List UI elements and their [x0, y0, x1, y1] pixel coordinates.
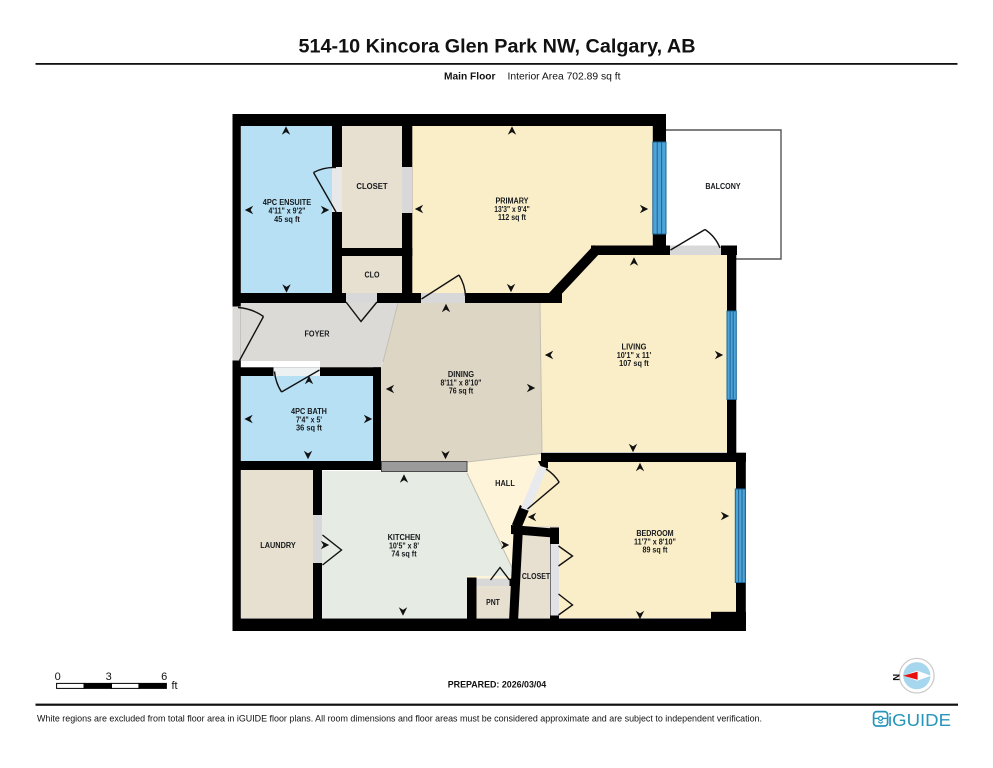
svg-text:N: N	[891, 674, 902, 681]
svg-text:CLOSET: CLOSET	[522, 571, 551, 581]
svg-text:0: 0	[55, 671, 61, 683]
svg-text:6: 6	[161, 671, 167, 683]
svg-text:ft: ft	[172, 680, 178, 692]
svg-text:LAUNDRY: LAUNDRY	[260, 540, 296, 550]
svg-text:PREPARED: 2026/03/04: PREPARED: 2026/03/04	[448, 679, 547, 690]
svg-text:Main Floor: Main Floor	[444, 71, 496, 82]
svg-text:BALCONY: BALCONY	[705, 181, 740, 191]
svg-text:CLOSET: CLOSET	[356, 181, 388, 191]
svg-text:76 sq ft: 76 sq ft	[449, 386, 473, 396]
svg-text:36 sq ft: 36 sq ft	[296, 423, 322, 433]
svg-text:514-10 Kincora Glen Park NW, C: 514-10 Kincora Glen Park NW, Calgary, AB	[299, 36, 696, 58]
svg-text:Interior Area 702.89 sq ft: Interior Area 702.89 sq ft	[508, 71, 621, 82]
svg-text:3: 3	[106, 671, 112, 683]
svg-text:FOYER: FOYER	[305, 329, 331, 339]
svg-text:74 sq ft: 74 sq ft	[391, 549, 416, 559]
svg-text:107 sq ft: 107 sq ft	[619, 358, 649, 368]
svg-text:PNT: PNT	[486, 597, 500, 607]
svg-text:45 sq ft: 45 sq ft	[274, 214, 300, 224]
svg-text:CLO: CLO	[365, 270, 380, 280]
svg-text:89 sq ft: 89 sq ft	[643, 545, 668, 555]
svg-text:112 sq ft: 112 sq ft	[498, 212, 526, 222]
svg-text:HALL: HALL	[495, 478, 515, 488]
svg-text:White regions are excluded fro: White regions are excluded from total fl…	[37, 713, 762, 724]
svg-text:iGUIDE: iGUIDE	[888, 710, 951, 730]
